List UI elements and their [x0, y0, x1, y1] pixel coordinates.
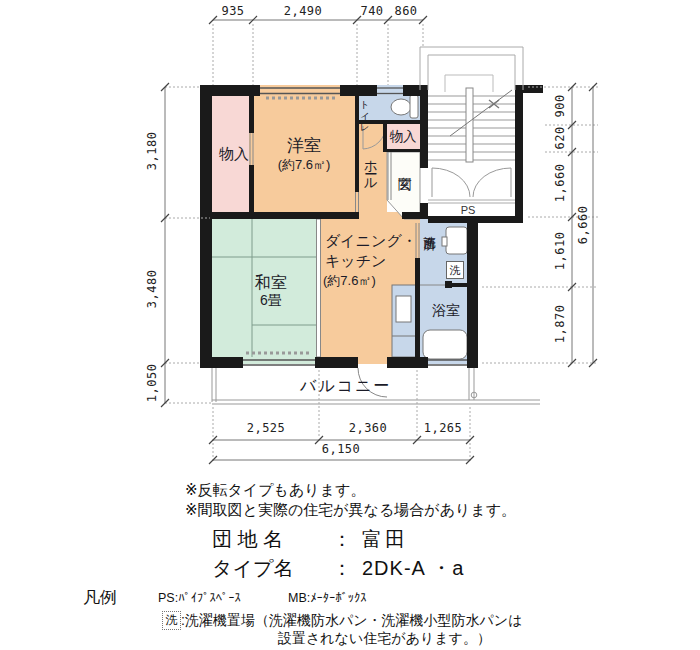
legend-ps: PS:ﾊﾟｲﾌﾟｽﾍﾟｰｽ — [158, 591, 241, 605]
label-dk-line1: ダイニング・ — [325, 232, 417, 249]
label-pipe-space: PS — [455, 204, 481, 217]
dim-top-1: 935 — [203, 5, 263, 19]
label-bathroom: 浴室 — [426, 302, 466, 318]
dim-bottom-2: 2,360 — [338, 422, 398, 436]
type-name-label: タイプ名 — [212, 557, 293, 580]
estate-name-separator: ： — [332, 528, 352, 551]
dim-right-5: 1,870 — [554, 294, 568, 354]
toilet-icon — [391, 99, 411, 115]
label-dk-area: (約7.6㎡) — [323, 274, 376, 289]
estate-name-label: 団 地 名 — [212, 528, 283, 551]
estate-name-value: 富田 — [362, 528, 408, 551]
label-western-room-area: (約7.6㎡) — [263, 158, 345, 173]
bathtub-icon — [423, 330, 467, 359]
dim-left-1: 3,180 — [146, 121, 160, 181]
room-entrance — [387, 152, 420, 219]
label-western-room: 洋室 — [269, 136, 339, 156]
landing-door-right-arc — [473, 168, 511, 197]
label-japanese-room: 和室 — [252, 274, 290, 292]
label-closet-left: 物入 — [215, 145, 253, 162]
label-japanese-room-size: 6畳 — [256, 292, 286, 308]
label-dk-line2: キッチン — [325, 252, 386, 269]
stair-rail — [466, 88, 473, 162]
label-closet-right: 物入 — [386, 129, 420, 145]
label-balcony: バルコニー — [300, 377, 392, 395]
stairwell — [420, 47, 523, 203]
laundry-symbol-plan: 洗 — [446, 261, 464, 279]
landing-door-left-arc — [432, 168, 470, 197]
floor-plan-page: 物入 洋室 (約7.6㎡) トイレ 物入 ホール 玄関 PS ダイニング・ キッ… — [0, 0, 700, 650]
legend-laundry-text: :洗濯機置場（洗濯機防水パン・洗濯機小型防水パンは — [181, 612, 523, 628]
dim-right-total: 6,660 — [577, 195, 591, 255]
kitchen-sink-icon — [396, 296, 411, 322]
floor-plan-drawing — [0, 0, 700, 650]
dim-bottom-1: 2,525 — [236, 422, 296, 436]
dim-left-2: 3,480 — [146, 259, 160, 319]
dim-top-2: 2,490 — [273, 5, 333, 19]
type-name-value: 2DK-A ・a — [362, 557, 464, 580]
fusuma-partition — [317, 219, 321, 357]
label-toilet: トイレ — [359, 93, 370, 128]
legend-laundry-text2: 設置されない住宅があります。） — [278, 630, 491, 646]
toilet-tank-icon — [410, 95, 418, 118]
dim-bottom-3: 1,265 — [413, 422, 473, 436]
dim-right-3: 1,660 — [554, 153, 568, 213]
dim-bottom-total: 6,150 — [311, 443, 371, 457]
label-washroom: 洗面所 — [422, 226, 436, 229]
washbasin-icon — [446, 227, 467, 254]
type-name-separator: ： — [332, 557, 352, 580]
legend-mb: MB:ﾒｰﾀｰﾎﾞｯｸｽ — [288, 591, 366, 605]
label-hall: ホール — [363, 151, 379, 185]
legend-title: 凡例 — [83, 588, 117, 608]
dim-top-4: 860 — [376, 5, 436, 19]
dim-right-4: 1,610 — [554, 221, 568, 281]
note-1: ※反転タイプもあります。 — [185, 481, 365, 498]
legend-laundry-symbol: 洗 — [162, 611, 181, 630]
stair-direction-line — [450, 90, 512, 136]
label-entrance: 玄関 — [397, 166, 413, 168]
dim-left-3: 1,050 — [146, 353, 160, 413]
note-2: ※間取図と実際の住宅が異なる場合があります。 — [185, 501, 516, 518]
